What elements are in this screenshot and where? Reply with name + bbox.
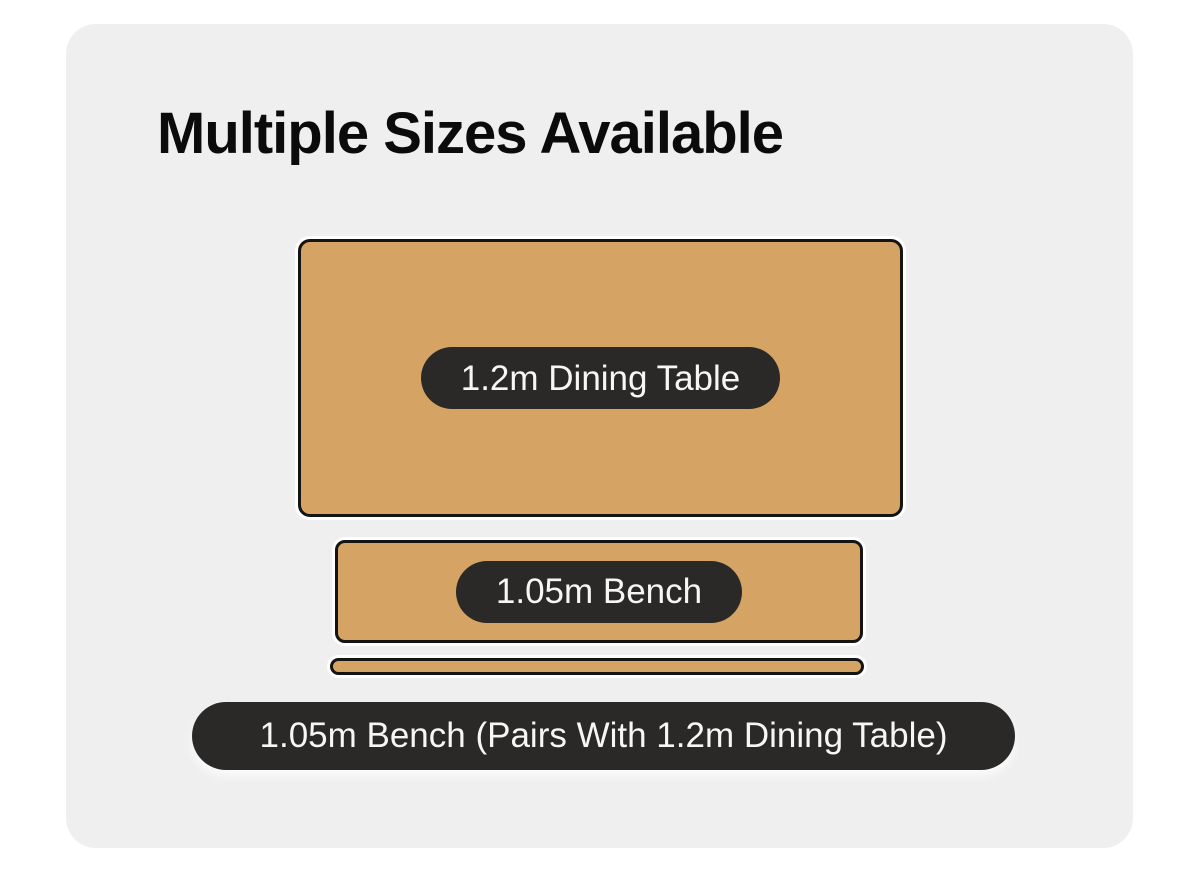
sizes-card: Multiple Sizes Available 1.2m Dining Tab… [66,24,1133,848]
dining-table-label-pill: 1.2m Dining Table [421,347,781,409]
bench-shape: 1.05m Bench [335,540,863,643]
bench-side-view-strip [330,658,864,675]
page-title: Multiple Sizes Available [157,100,783,167]
bench-label-pill: 1.05m Bench [456,561,742,623]
dining-table-shape: 1.2m Dining Table [298,239,903,517]
caption-pill: 1.05m Bench (Pairs With 1.2m Dining Tabl… [192,702,1015,770]
